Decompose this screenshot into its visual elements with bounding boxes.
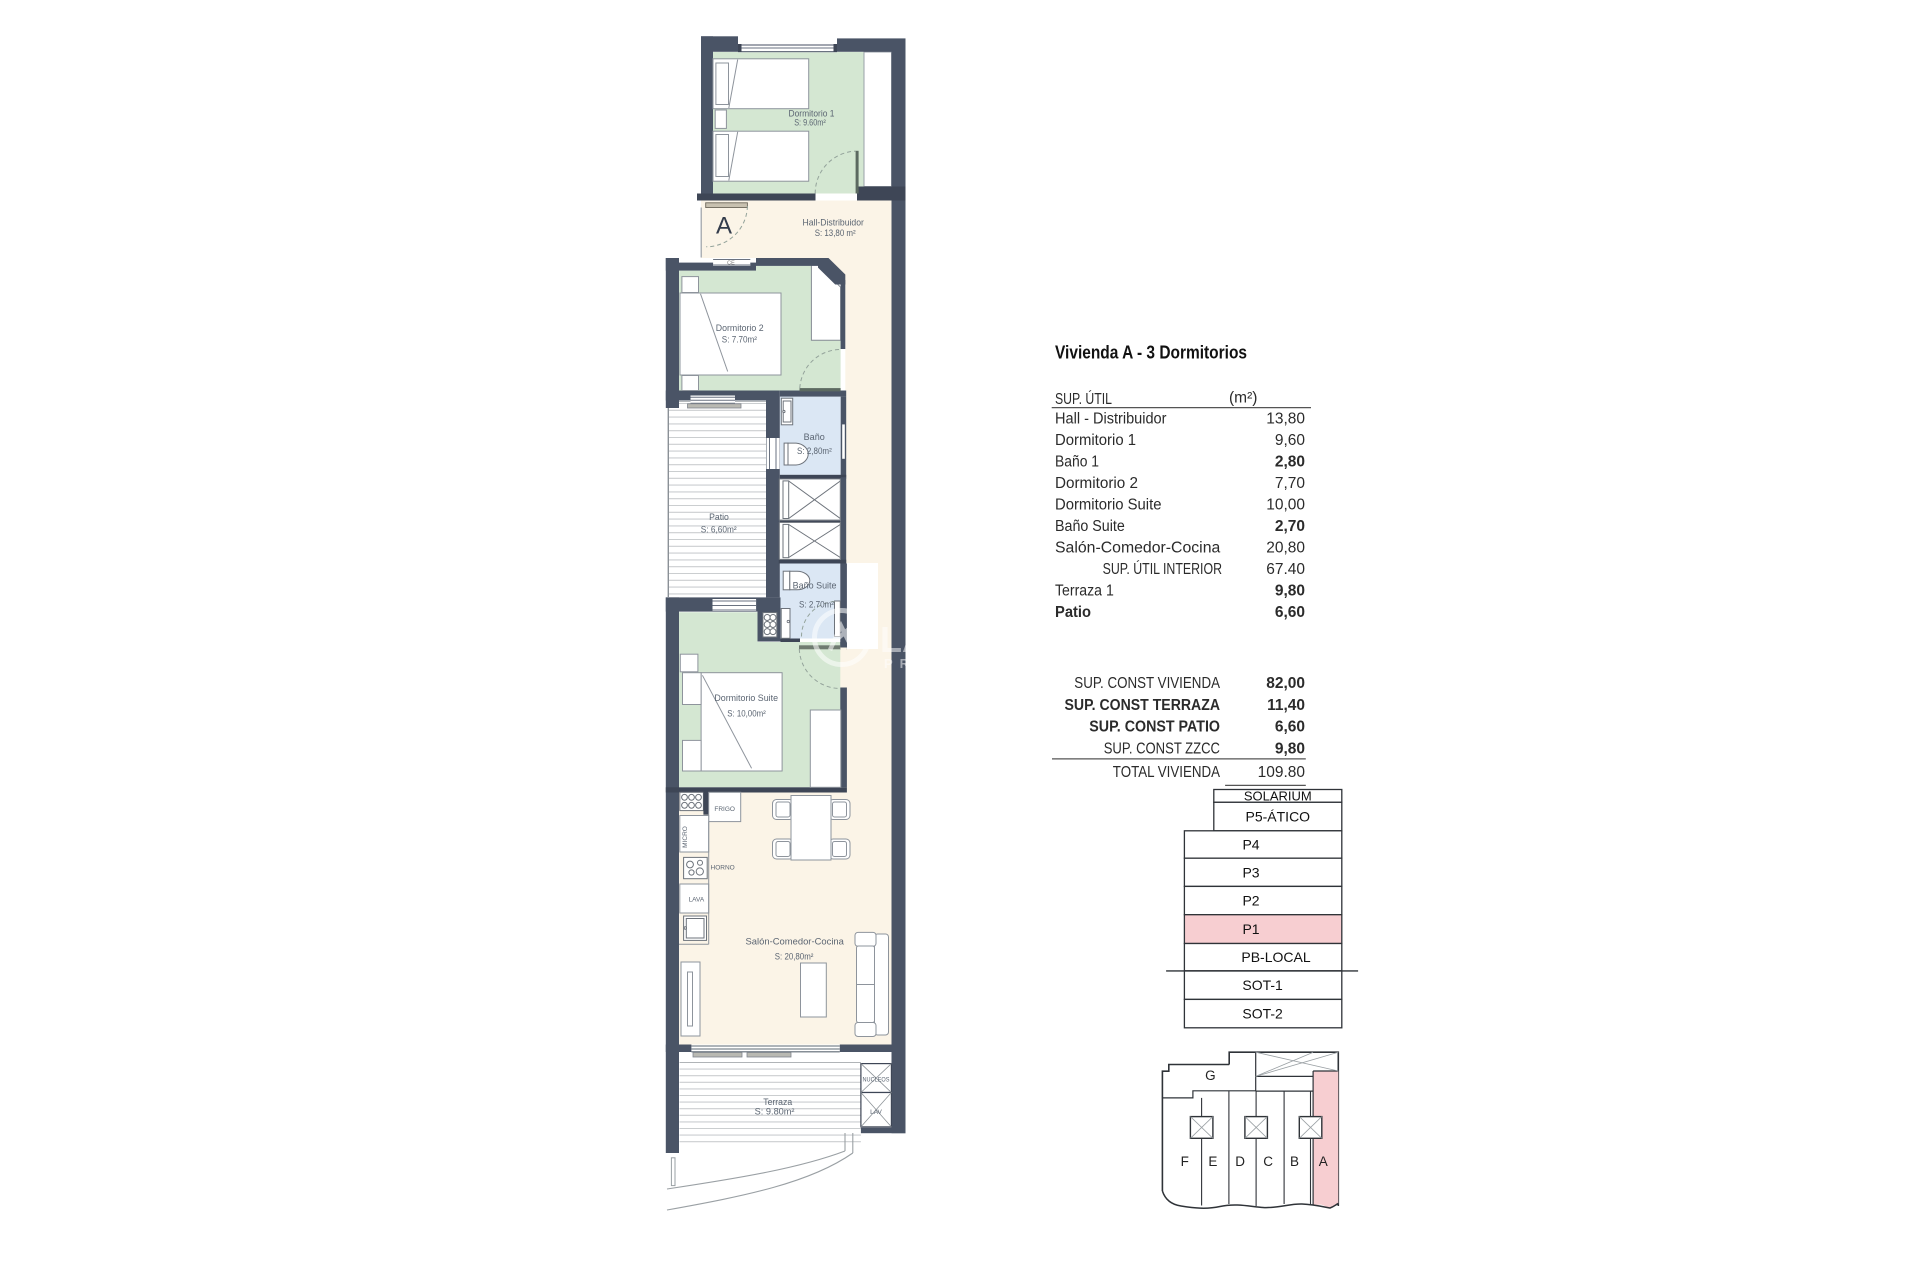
svg-text:Dormitorio 2: Dormitorio 2 xyxy=(1055,475,1138,492)
svg-text:S: 2.70m²: S: 2.70m² xyxy=(799,600,834,610)
svg-text:Vivienda A - 3 Dormitorios: Vivienda A - 3 Dormitorios xyxy=(1055,342,1247,363)
svg-text:67.40: 67.40 xyxy=(1266,561,1305,578)
svg-text:13,80: 13,80 xyxy=(1266,411,1305,428)
svg-text:S: 7.70m²: S: 7.70m² xyxy=(722,335,757,345)
svg-text:(m²): (m²) xyxy=(1229,390,1257,407)
svg-text:LAV: LAV xyxy=(870,1109,882,1116)
svg-text:Patio: Patio xyxy=(709,512,729,523)
svg-text:11,40: 11,40 xyxy=(1267,697,1305,714)
svg-text:9,80: 9,80 xyxy=(1275,583,1305,600)
svg-text:HORNO: HORNO xyxy=(711,865,735,872)
svg-text:2,80: 2,80 xyxy=(1275,454,1305,471)
svg-text:Dormitorio Suite: Dormitorio Suite xyxy=(714,693,778,704)
svg-text:7,70: 7,70 xyxy=(1275,475,1306,492)
svg-text:LA: LA xyxy=(880,619,928,660)
svg-text:TOTAL VIVIENDA: TOTAL VIVIENDA xyxy=(1113,764,1221,781)
svg-text:PB-LOCAL: PB-LOCAL xyxy=(1241,949,1310,965)
svg-text:PR: PR xyxy=(884,656,916,671)
svg-text:S: 9.80m²: S: 9.80m² xyxy=(755,1107,795,1117)
svg-text:SUP. CONST ZZCC: SUP. CONST ZZCC xyxy=(1104,741,1220,758)
svg-text:Patio: Patio xyxy=(1055,604,1091,621)
svg-text:SUP. CONST PATIO: SUP. CONST PATIO xyxy=(1089,719,1220,736)
svg-text:SOT-1: SOT-1 xyxy=(1242,977,1283,993)
svg-text:Terraza 1: Terraza 1 xyxy=(1055,583,1114,600)
svg-text:109.80: 109.80 xyxy=(1258,764,1306,781)
svg-text:G: G xyxy=(1205,1068,1216,1083)
svg-text:P2: P2 xyxy=(1242,893,1259,909)
svg-text:CE: CE xyxy=(727,261,735,267)
svg-text:NUCLEOS: NUCLEOS xyxy=(863,1077,891,1084)
svg-text:6,60: 6,60 xyxy=(1275,719,1305,736)
svg-text:A: A xyxy=(716,213,732,240)
svg-text:Baño Suite: Baño Suite xyxy=(1055,518,1125,535)
svg-text:S: 10,00m²: S: 10,00m² xyxy=(727,708,766,718)
svg-text:Hall-Distribuidor: Hall-Distribuidor xyxy=(803,218,864,229)
svg-text:Dormitorio 2: Dormitorio 2 xyxy=(716,323,764,334)
svg-text:SUP. ÚTIL INTERIOR: SUP. ÚTIL INTERIOR xyxy=(1103,561,1222,578)
svg-text:2,70: 2,70 xyxy=(1275,518,1305,535)
svg-text:Salón-Comedor-Cocina: Salón-Comedor-Cocina xyxy=(746,936,845,947)
svg-text:P1: P1 xyxy=(1242,921,1259,937)
svg-text:SUP. CONST VIVIENDA: SUP. CONST VIVIENDA xyxy=(1074,675,1220,692)
svg-text:D: D xyxy=(1235,1154,1245,1169)
svg-text:SOT-2: SOT-2 xyxy=(1242,1006,1283,1022)
svg-text:Baño Suite: Baño Suite xyxy=(793,580,837,591)
svg-text:S: 20,80m²: S: 20,80m² xyxy=(775,951,814,961)
svg-text:SUP. ÚTIL: SUP. ÚTIL xyxy=(1055,391,1112,408)
svg-text:S: 9.60m²: S: 9.60m² xyxy=(794,117,826,127)
svg-text:Hall - Distribuidor: Hall - Distribuidor xyxy=(1055,411,1167,428)
svg-text:S: 2,80m²: S: 2,80m² xyxy=(797,446,832,456)
svg-text:P5-ÁTICO: P5-ÁTICO xyxy=(1246,809,1311,825)
svg-text:P3: P3 xyxy=(1242,864,1259,880)
svg-text:Dormitorio Suite: Dormitorio Suite xyxy=(1055,497,1162,514)
svg-text:P4: P4 xyxy=(1242,837,1259,853)
svg-text:MICRO: MICRO xyxy=(682,826,689,848)
svg-text:Baño: Baño xyxy=(804,432,825,443)
svg-text:6,60: 6,60 xyxy=(1275,604,1305,621)
svg-text:10,00: 10,00 xyxy=(1266,497,1305,514)
svg-text:F: F xyxy=(1181,1154,1189,1169)
svg-text:S: 13,80 m²: S: 13,80 m² xyxy=(815,228,856,238)
svg-text:FRIGO: FRIGO xyxy=(714,806,735,813)
svg-text:C: C xyxy=(1263,1154,1273,1169)
svg-text:S: 6,60m²: S: 6,60m² xyxy=(701,524,737,534)
svg-text:Salón-Comedor-Cocina: Salón-Comedor-Cocina xyxy=(1055,540,1221,557)
svg-text:82,00: 82,00 xyxy=(1266,675,1305,692)
svg-text:SUP. CONST TERRAZA: SUP. CONST TERRAZA xyxy=(1065,697,1221,714)
svg-text:Baño 1: Baño 1 xyxy=(1055,454,1099,471)
svg-text:LAVA: LAVA xyxy=(689,897,705,904)
svg-text:A: A xyxy=(1319,1154,1328,1169)
svg-text:20,80: 20,80 xyxy=(1266,540,1305,557)
svg-text:E: E xyxy=(1208,1154,1217,1169)
svg-text:Dormitorio 1: Dormitorio 1 xyxy=(1055,432,1136,449)
svg-text:B: B xyxy=(1290,1154,1299,1169)
svg-text:SOLARIUM: SOLARIUM xyxy=(1244,789,1312,804)
svg-text:9,80: 9,80 xyxy=(1275,741,1305,758)
svg-text:9,60: 9,60 xyxy=(1275,432,1306,449)
